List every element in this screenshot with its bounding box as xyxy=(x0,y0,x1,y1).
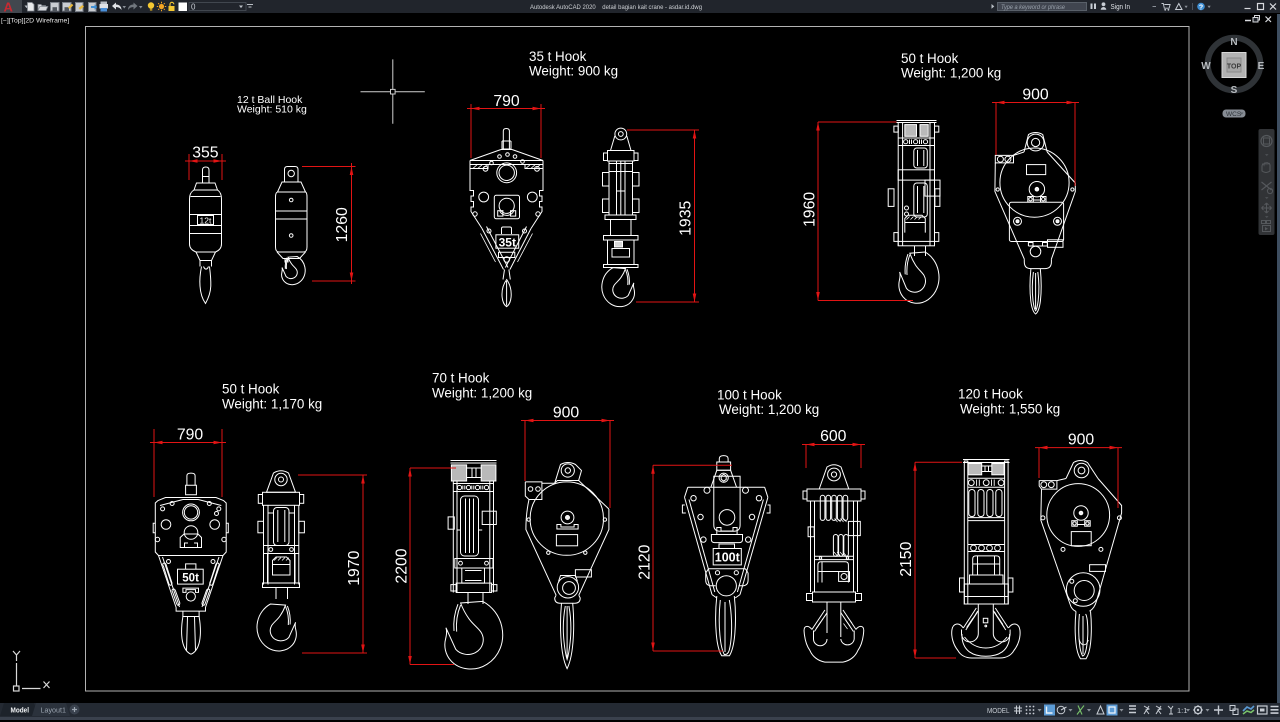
svg-text:1970: 1970 xyxy=(346,550,363,585)
svg-text:790: 790 xyxy=(493,93,520,110)
svg-text:Weight: 1,200 kg: Weight: 1,200 kg xyxy=(719,402,819,417)
svg-text:1260: 1260 xyxy=(334,207,351,242)
svg-text:WCS: WCS xyxy=(1226,111,1242,118)
svg-text:Weight: 1,200 kg: Weight: 1,200 kg xyxy=(432,386,532,401)
svg-text:50 t Hook: 50 t Hook xyxy=(222,382,280,397)
svg-text:Sign In: Sign In xyxy=(1111,4,1131,11)
svg-text:Type a keyword or phrase: Type a keyword or phrase xyxy=(1001,4,1065,11)
svg-text:Weight: 510 kg: Weight: 510 kg xyxy=(237,104,307,116)
svg-text:[−][Top][2D Wireframe]: [−][Top][2D Wireframe] xyxy=(1,18,69,25)
svg-text:790: 790 xyxy=(177,427,204,444)
svg-text:Weight: 1,550 kg: Weight: 1,550 kg xyxy=(960,402,1060,417)
svg-text:1960: 1960 xyxy=(801,192,818,227)
svg-text:N: N xyxy=(1230,37,1237,48)
svg-text:2120: 2120 xyxy=(637,544,654,579)
svg-text:600: 600 xyxy=(820,428,847,445)
svg-text:Weight: 1,170 kg: Weight: 1,170 kg xyxy=(222,397,322,412)
svg-text:2200: 2200 xyxy=(393,548,410,583)
svg-text:A: A xyxy=(4,0,14,13)
svg-text:MODEL: MODEL xyxy=(987,706,1010,715)
svg-text:Weight: 900 kg: Weight: 900 kg xyxy=(529,64,618,79)
svg-text:Model: Model xyxy=(11,706,30,715)
svg-text:12t: 12t xyxy=(200,216,212,226)
svg-text:2150: 2150 xyxy=(898,541,915,576)
svg-text:900: 900 xyxy=(1022,87,1049,104)
svg-text:Layout1: Layout1 xyxy=(41,706,67,715)
svg-text:1935: 1935 xyxy=(677,201,694,236)
svg-text:1:1: 1:1 xyxy=(1177,706,1187,715)
svg-text:50t: 50t xyxy=(182,573,199,585)
svg-text:50 t Hook: 50 t Hook xyxy=(901,51,959,66)
svg-text:355: 355 xyxy=(192,145,219,162)
svg-text:35t: 35t xyxy=(499,235,516,249)
svg-text:TOP: TOP xyxy=(1227,64,1242,71)
svg-text:120 t Hook: 120 t Hook xyxy=(958,387,1023,402)
svg-text:Autodesk AutoCAD 2020 detai: Autodesk AutoCAD 2020 detail bagian kait… xyxy=(530,4,702,11)
svg-text:70 t Hook: 70 t Hook xyxy=(432,371,490,386)
svg-text:100t: 100t xyxy=(715,551,741,565)
svg-text:100 t Hook: 100 t Hook xyxy=(717,388,782,403)
svg-text:900: 900 xyxy=(553,405,580,422)
svg-text:?: ? xyxy=(1199,4,1203,11)
svg-text:Weight: 1,200 kg: Weight: 1,200 kg xyxy=(901,66,1001,81)
svg-text:S: S xyxy=(1231,85,1238,96)
svg-text:35 t Hook: 35 t Hook xyxy=(529,49,587,64)
svg-text:E: E xyxy=(1258,61,1265,72)
svg-text:900: 900 xyxy=(1068,431,1095,448)
svg-text:W: W xyxy=(1201,61,1211,72)
